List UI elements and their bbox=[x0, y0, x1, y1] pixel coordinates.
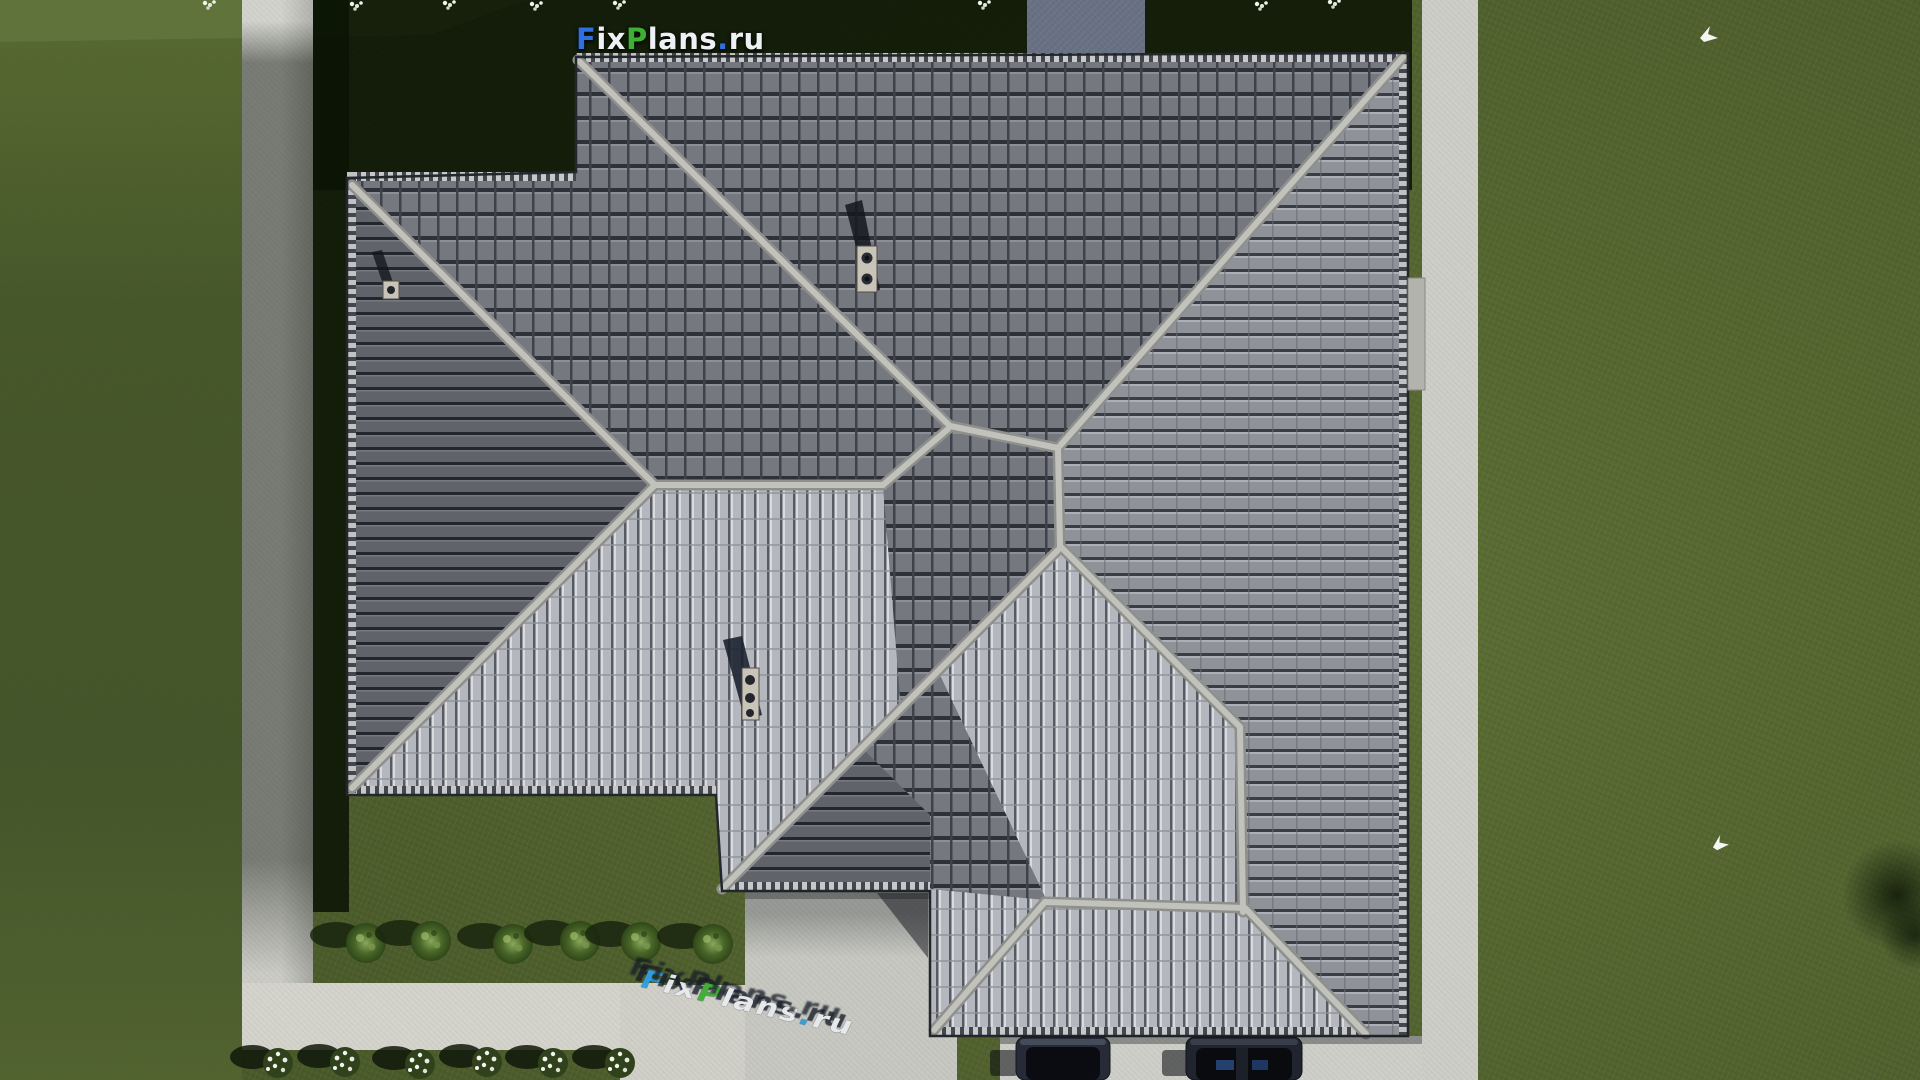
logo-segment: ix bbox=[596, 22, 626, 56]
right-wall-unit bbox=[1408, 278, 1425, 390]
site-logo: FixPlans.ru bbox=[576, 22, 765, 56]
hip-roof bbox=[347, 53, 1425, 1036]
white-bird-top bbox=[1700, 26, 1718, 42]
logo-segment: lans bbox=[648, 22, 717, 56]
white-flower-bush-row bbox=[230, 1044, 635, 1079]
logo-segment: ru bbox=[729, 22, 765, 56]
logo-segment: P bbox=[626, 22, 648, 56]
roof-and-yard-graphics bbox=[0, 0, 1920, 1080]
green-bush-row bbox=[310, 920, 733, 964]
aerial-render-scene: FixPlans.ru FixPlans.ru bbox=[0, 0, 1920, 1080]
white-bird-bottom bbox=[1711, 834, 1729, 851]
logo-segment: . bbox=[717, 22, 729, 56]
top-flower-clusters bbox=[203, 0, 1341, 11]
logo-segment: F bbox=[576, 22, 596, 56]
